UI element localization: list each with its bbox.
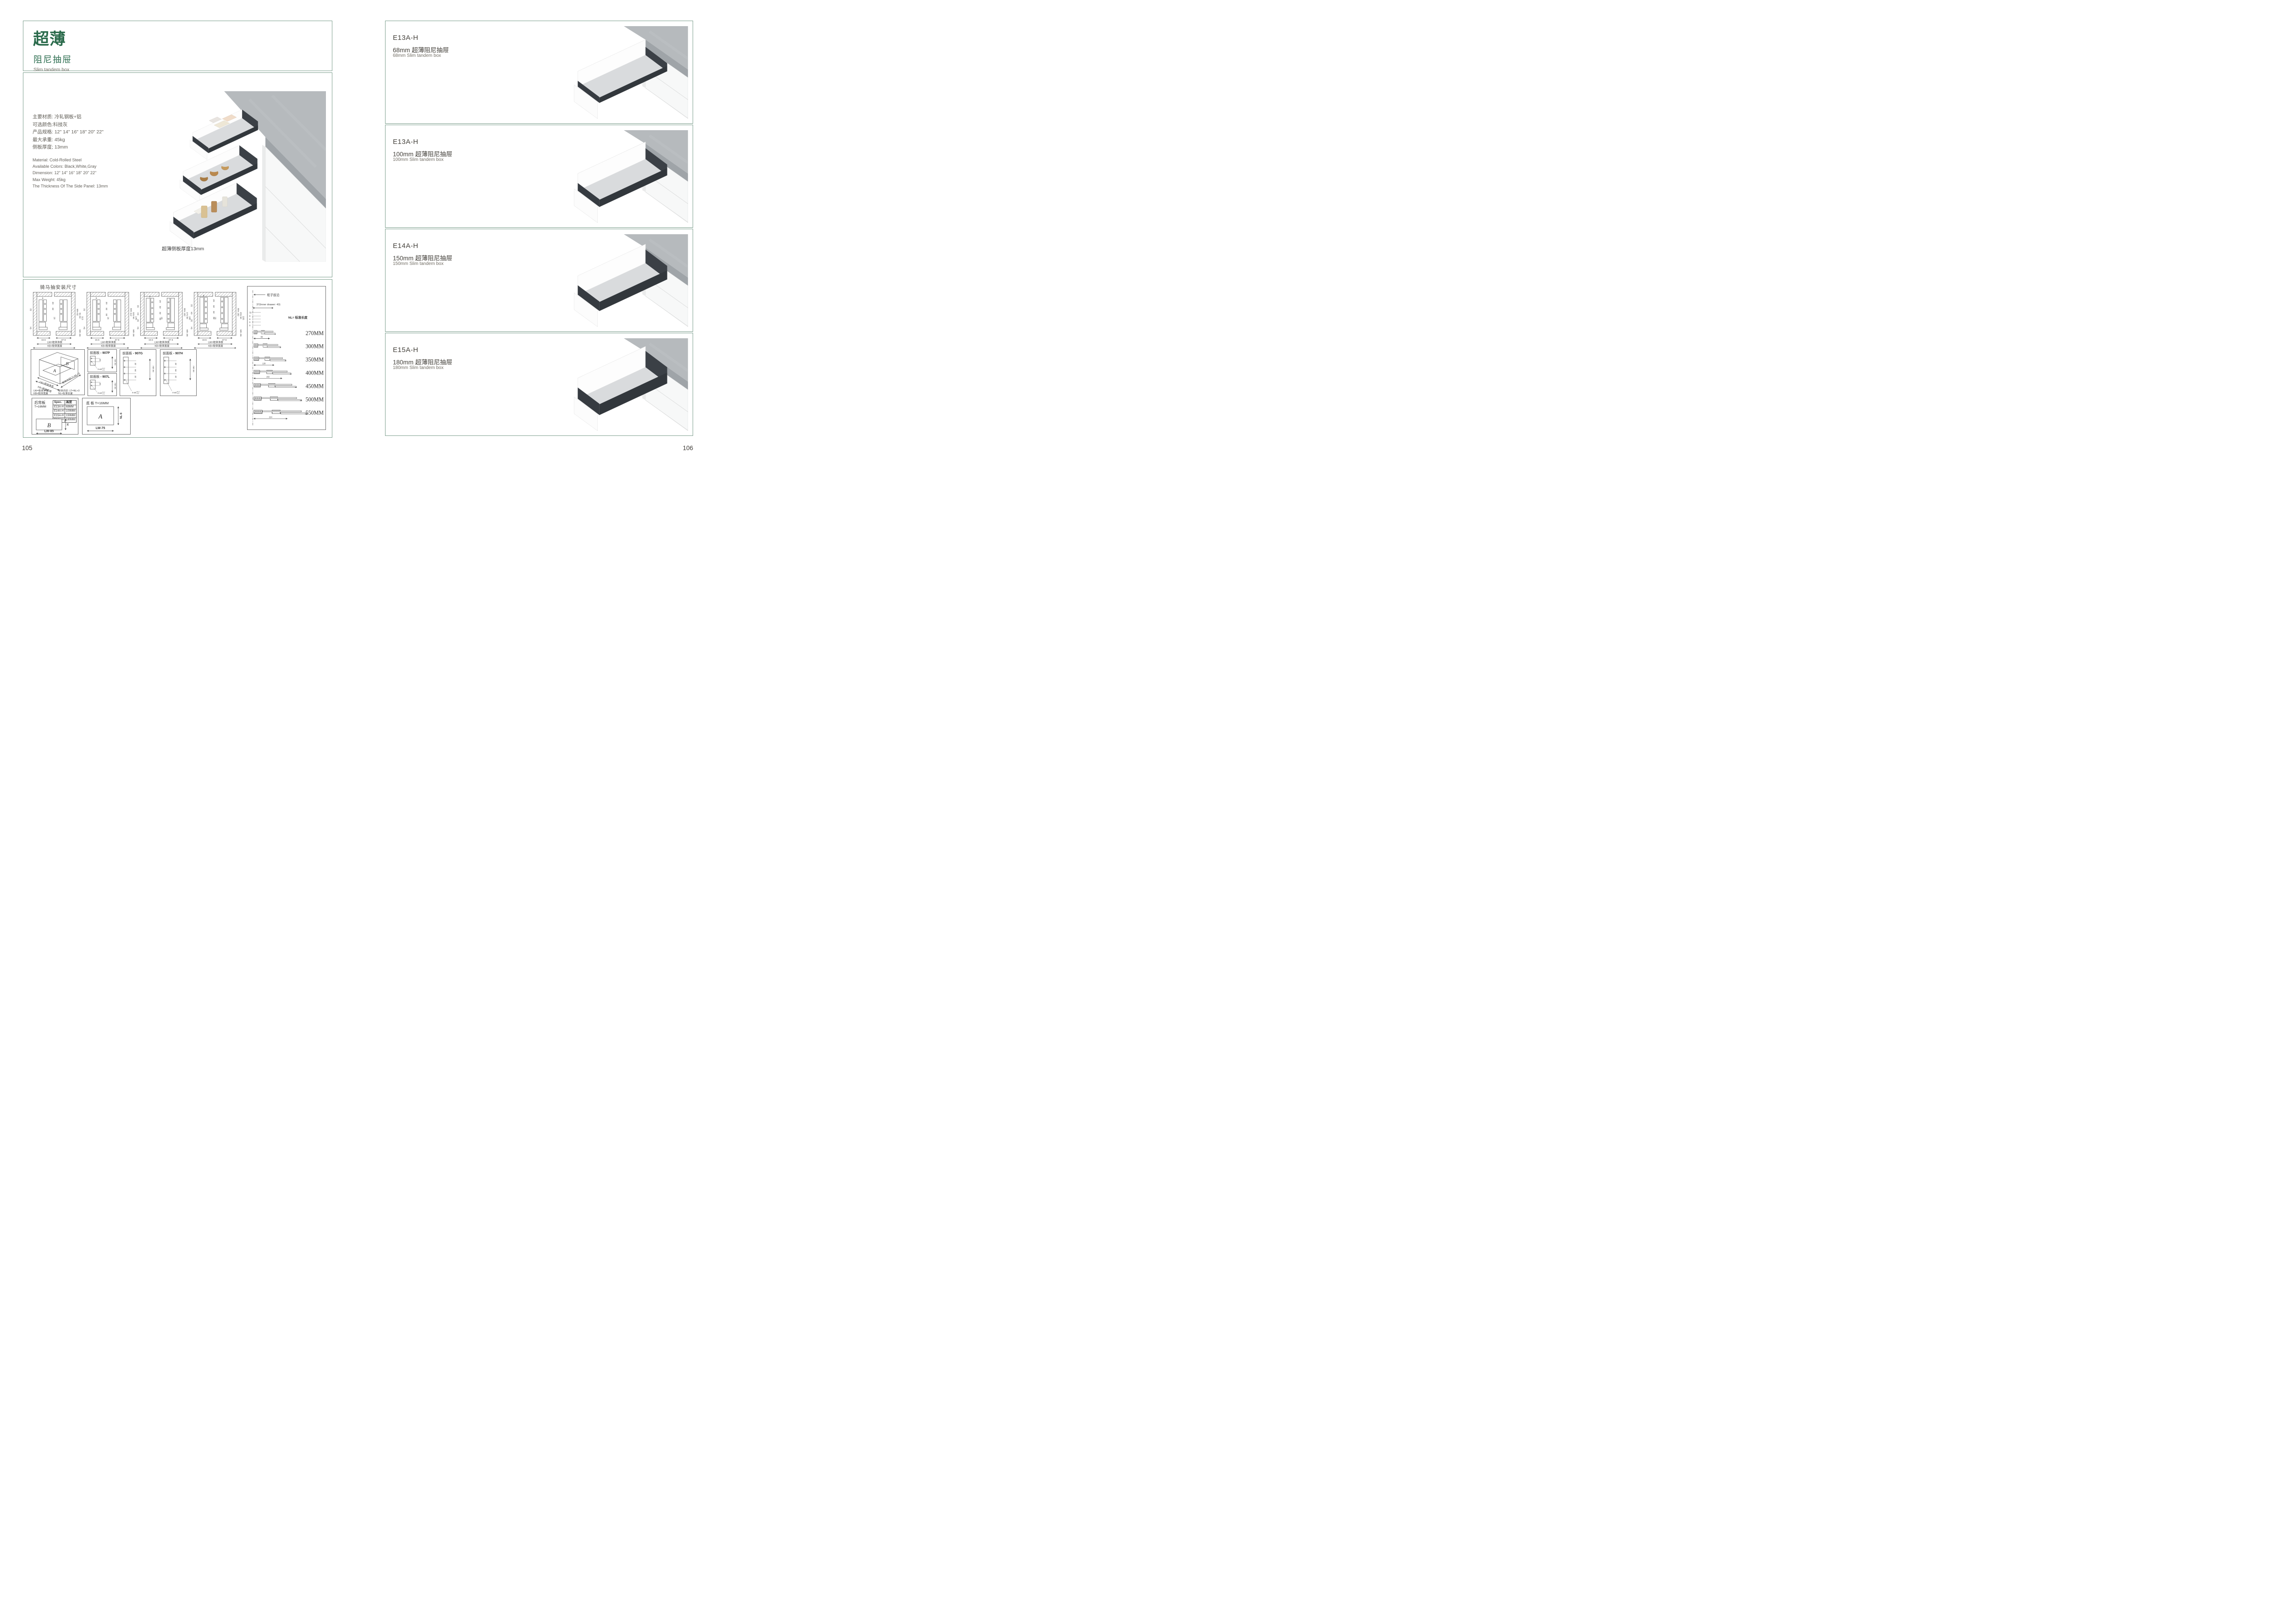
- dim-lw75: LW-75: [96, 427, 105, 430]
- front-panel-907p-title: 前面板 - 907P: [90, 351, 110, 355]
- col-height: 高度: [65, 401, 76, 405]
- dim-mid: 171.50: [186, 312, 188, 319]
- iso-legend-1: LW=柜体净宽: [33, 389, 49, 392]
- bottom-panel-drawing: A NL-6 LW-75: [85, 406, 128, 433]
- slide-270: [254, 330, 276, 335]
- product-photo-100mm: [552, 130, 688, 223]
- dim-96: 96: [260, 336, 263, 338]
- slide-450: [254, 384, 297, 388]
- dim-32b: 32: [105, 314, 108, 316]
- dim-max: 225: [242, 316, 244, 320]
- cross-section-diagram-3: 9 20 32 32 32 32 64 32 54 16 Min 162 171…: [137, 291, 191, 349]
- left-header-box: 超薄 阻尼抽屉 Slim tandem box: [23, 21, 332, 71]
- fp-min54: min 54: [114, 383, 116, 389]
- iso-legend-2: KB=柜体宽度: [33, 391, 48, 395]
- dim-left-64: 64: [137, 313, 140, 315]
- dim-16-5: 16.5: [95, 339, 99, 341]
- jar-lid: [200, 175, 208, 177]
- dim-192: 192: [266, 376, 270, 378]
- dim-mid: 91.50: [78, 313, 81, 319]
- product-section-100mm: E13A-H 100mm 超薄阻尼抽屉 100mm Slim tandem bo…: [385, 125, 693, 228]
- front-panel-name: 前面板: [163, 352, 172, 355]
- page-subtitle-en: Slim tandem box: [33, 67, 69, 72]
- front-panel-907h-title: 前面板 - 907H: [163, 351, 183, 356]
- dim-9: 9: [96, 297, 97, 300]
- dim-left-32b: 32: [191, 319, 193, 322]
- slide-550: [254, 410, 307, 414]
- jar-lid: [210, 169, 218, 172]
- label-kb: KB=柜体宽度: [208, 344, 223, 347]
- dim-32: 32: [212, 305, 215, 308]
- fp-min54: min 54: [152, 366, 154, 372]
- bottle-item: [201, 206, 207, 218]
- model-title-en: 150mm Slim tandem box: [393, 261, 444, 266]
- model-code: E14A-H: [393, 242, 419, 250]
- cell-model: E14A-H: [53, 409, 65, 414]
- dim-32: 32: [105, 308, 108, 310]
- length-chart-drawing: 柜子前沿 37(Inner drawer: 43) 32 9 9 9 9 NL=…: [248, 286, 325, 429]
- product-section-180mm: E15A-H 180mm 超薄阻尼抽屉 180mm Slim tandem bo…: [385, 333, 693, 436]
- front-panel-907p-drawing: 32 min 54 2-ø2+0.2-0.1: [88, 356, 116, 371]
- length-350: 350MM: [306, 357, 324, 363]
- dim-9: 9: [149, 296, 151, 298]
- cross-section-diagram-1: 9 20 32 32 54 16 Min 82 91.50 113 Min 36…: [30, 291, 84, 349]
- dim-224: 224: [269, 416, 273, 418]
- label-lw: LW=柜体净宽: [208, 340, 223, 344]
- model-code: E15A-H: [393, 346, 419, 354]
- fp-min54: min 54: [193, 366, 195, 372]
- cell-model: E15A-H: [53, 413, 65, 418]
- fp-dim-32: 32: [99, 383, 101, 385]
- product-photo-68mm: [552, 26, 688, 119]
- dim-9: 9: [42, 297, 44, 300]
- model-title-en: 180mm Slim tandem box: [393, 365, 444, 370]
- dim-min: Min 192: [237, 308, 240, 316]
- dim-20: 20: [51, 302, 54, 304]
- back-panel-thickness: T=16MM: [34, 405, 46, 408]
- model-title-cn: 68mm 超薄阻尼抽屉: [393, 45, 449, 54]
- table-row: E13A-H68MM: [53, 405, 76, 409]
- front-panel-907l-box: 前面板 - 907L 32 min 54 2-ø2+0.2-0.1: [88, 373, 117, 396]
- cell-height: 68MM: [65, 405, 76, 409]
- front-panel-907g-box: 前面板 - 907G 32 64 32 min 54 4-ø2+0.2-0.1: [120, 349, 156, 396]
- spec-en-line: Max Weight: 45kg: [33, 176, 108, 183]
- spec-cn-line: 主要材质: 冷轧钢板+铝: [33, 113, 104, 121]
- table-row: E14A-H100MM: [53, 409, 76, 414]
- dim-16-5: 16.5: [41, 339, 46, 341]
- spec-cn-line: 最大承重: 45kg: [33, 136, 104, 144]
- specs-cn: 主要材质: 冷轧钢板+铝 可选颜色:科技灰 产品规格: 12" 14" 16" …: [33, 113, 104, 151]
- fp-dim-32b: 32: [134, 375, 137, 378]
- dim-min36: Min 36: [78, 330, 81, 336]
- front-panel-907g-drawing: 32 64 32 min 54 4-ø2+0.2-0.1: [121, 356, 155, 396]
- product-photo-three-drawers: [155, 91, 326, 262]
- length-chart-box: 柜子前沿 37(Inner drawer: 43) 32 9 9 9 9 NL=…: [247, 286, 326, 430]
- fp-min54: min 54: [114, 359, 116, 365]
- dim-9: 9: [249, 315, 251, 317]
- label-lw: LW=柜体净宽: [154, 340, 170, 344]
- length-270: 270MM: [306, 330, 324, 336]
- panel-a-letter: A: [53, 369, 56, 374]
- iso-cabinet-drawing: A B LW=柜体净宽 KB=柜体宽度 柜体内空LT=NL+3 LW=柜体净宽 …: [31, 350, 84, 395]
- length-400: 400MM: [306, 370, 324, 376]
- dim-20: 20: [212, 299, 215, 302]
- label-kb: KB=柜体宽度: [154, 344, 170, 347]
- dim-min36: Min 36: [132, 330, 135, 336]
- fp-note: 4-ø2+0.2-0.1: [132, 391, 139, 395]
- col-spec: Spec.: [53, 401, 65, 405]
- dim-9: 9: [249, 318, 251, 320]
- dim-left-54: 54: [137, 327, 140, 330]
- left-install-box: 骑马抽安装尺寸 9 20 32 32: [23, 279, 332, 438]
- dim-20: 20: [105, 302, 108, 304]
- panel-b-letter: B: [47, 422, 51, 429]
- dim-16: 16: [107, 317, 110, 319]
- length-300: 300MM: [306, 343, 324, 350]
- cabinet-front-label: 柜子前沿: [267, 293, 280, 297]
- iso-diagram-box: A B LW=柜体净宽 KB=柜体宽度 柜体内空LT=NL+3 LW=柜体净宽 …: [31, 349, 85, 395]
- fp-dim-64: 64: [175, 369, 177, 372]
- table-row: E15A-H150MM: [53, 413, 76, 418]
- panel-b-letter: B: [66, 361, 69, 366]
- iso-lt-label: 柜体内空LT=NL+3: [61, 372, 81, 385]
- bottom-panel-box: 底 板 T=16MM A NL-6 LW-75: [82, 398, 131, 435]
- catalog-spread: 超薄 阻尼抽屉 Slim tandem box 主要材质: 冷轧钢板+铝 可选颜…: [0, 0, 719, 468]
- spec-cn-line: 侧板厚度; 13mm: [33, 143, 104, 151]
- length-450: 450MM: [306, 383, 324, 390]
- dim-left-54: 54: [30, 327, 33, 330]
- cell-model: E13A-H: [53, 405, 65, 409]
- iso-legend-4: NL=标准长度: [58, 391, 73, 395]
- fp-note: 2-ø2+0.2-0.1: [98, 368, 105, 371]
- front-panel-907g-title: 前面板 - 907G: [122, 351, 143, 356]
- dim-16-5: 16.5: [149, 339, 153, 341]
- dim-lw85: LW-85: [44, 430, 54, 433]
- fp-dim-32: 32: [99, 359, 101, 362]
- length-500: 500MM: [306, 396, 324, 403]
- spec-en-line: Available Colors: Black,White,Gray: [33, 163, 108, 170]
- label-lw: LW=柜体净宽: [47, 340, 62, 344]
- front-panel-code: - 907H: [173, 352, 183, 355]
- dim-left-32: 32: [83, 308, 86, 311]
- slide-assemblies: [200, 297, 228, 330]
- dim-h: H: [67, 424, 70, 425]
- dim-left-54: 54: [83, 327, 86, 330]
- model-title-en: 100mm Slim tandem box: [393, 157, 444, 162]
- model-code: E13A-H: [393, 138, 419, 146]
- dim-left-32: 32: [30, 308, 33, 311]
- jar-lid: [221, 164, 229, 167]
- model-code: E13A-H: [393, 34, 419, 42]
- cross-section-diagram-4: 9 20 32 32 32 32 64 32 54 16 Min 192 201…: [191, 291, 245, 349]
- slide-500: [254, 397, 302, 401]
- back-panel-box: 后背板 T=16MM Spec.高度 E13A-H68MM E14A-H100M…: [32, 398, 78, 435]
- back-panel-drawing: B H LW-85: [33, 418, 77, 435]
- cell-height: 100MM: [65, 409, 76, 414]
- product-section-150mm: E14A-H 150mm 超薄阻尼抽屉 150mm Slim tandem bo…: [385, 229, 693, 332]
- page-number-right: 106: [673, 445, 693, 451]
- front-panel-907l-drawing: 32 min 54 2-ø2+0.2-0.1: [88, 380, 116, 395]
- dim-min: Min 162: [183, 308, 186, 316]
- open-drawer: [574, 347, 667, 431]
- nl-note: NL= 标准长度: [288, 315, 308, 319]
- slide-400: [254, 370, 292, 374]
- left-main-box: 主要材质: 冷轧钢板+铝 可选颜色:科技灰 产品规格: 12" 14" 16" …: [23, 72, 332, 277]
- spec-cn-line: 可选颜色:科技灰: [33, 121, 104, 129]
- front-panel-name: 前面板: [90, 352, 99, 355]
- install-title: 骑马抽安装尺寸: [40, 284, 77, 291]
- product-photo-180mm: [552, 338, 688, 431]
- dim-min36: Min 36: [186, 330, 188, 336]
- dim-min: Min 82: [76, 309, 79, 316]
- dim-9: 9: [249, 321, 251, 324]
- dim-20: 20: [159, 300, 161, 303]
- page-title: 超薄: [33, 31, 66, 47]
- slide-300: [254, 344, 281, 348]
- dim-32: 32: [159, 306, 161, 309]
- dim-32b: 32: [212, 311, 215, 314]
- drawer-bottom-open: [170, 183, 257, 247]
- dim-32: 32: [249, 311, 252, 314]
- offset-label: 37(Inner drawer: 43): [256, 303, 280, 306]
- specs-en: Material: Cold-Rolled Steel Available Co…: [33, 157, 108, 189]
- dim-16-5: 16.5: [202, 339, 207, 341]
- front-panel-name: 前面板: [122, 352, 132, 355]
- dim-mid: 121.50: [132, 312, 135, 319]
- fp-dim-32: 32: [134, 363, 137, 365]
- dim-left-64: 64: [191, 312, 193, 314]
- spec-cn-line: 产品规格: 12" 14" 16" 18" 20" 22": [33, 128, 104, 136]
- iso-legend-3: 柜体内空: LT=NL+3: [58, 389, 80, 392]
- dim-32b: 32: [159, 312, 161, 314]
- dim-min36: Min 36: [239, 330, 242, 336]
- model-title-cn: 180mm 超薄阻尼抽屉: [393, 357, 452, 366]
- fp-note: 4-ø2+0.2-0.1: [172, 391, 180, 395]
- model-title-en: 68mm Slim tandem box: [393, 53, 441, 58]
- front-panel-code: - 907P: [100, 352, 110, 355]
- dim-min: Min 112: [130, 308, 132, 317]
- front-panel-907h-drawing: 32 64 32 min 54 4-ø2+0.2-0.1: [161, 356, 196, 396]
- dim-left-32: 32: [137, 305, 140, 308]
- bottom-panel-title: 底 板 T=16MM: [86, 401, 109, 406]
- open-drawer: [574, 244, 667, 327]
- product-photo-150mm: [552, 234, 688, 327]
- front-panel-code: - 907G: [133, 352, 143, 355]
- front-panel-name: 前面板: [90, 375, 99, 379]
- front-panel-907h-box: 前面板 - 907H 32 64 32 min 54 4-ø2+0.2-0.1: [160, 349, 197, 396]
- front-panel-907p-box: 前面板 - 907P 32 min 54 2-ø2+0.2-0.1: [88, 349, 117, 372]
- product-section-68mm: E13A-H 68mm 超薄阻尼抽屉 68mm Slim tandem box: [385, 21, 693, 124]
- dim-left-54: 54: [191, 327, 193, 330]
- dim-mid: 201.50: [239, 312, 242, 319]
- back-panel-title: 后背板: [34, 400, 45, 405]
- model-title-cn: 150mm 超薄阻尼抽屉: [393, 253, 452, 262]
- label-kb: KB=柜体宽度: [101, 344, 116, 347]
- slide-350: [254, 357, 286, 361]
- model-title-cn: 100mm 超薄阻尼抽屉: [393, 149, 452, 158]
- label-lw: LW=柜体净宽: [101, 340, 116, 344]
- bottle-item: [211, 201, 217, 212]
- dim-128: 128: [262, 363, 266, 365]
- photo-caption: 超薄侧板厚度13mm: [162, 245, 204, 252]
- dim-16: 16: [53, 317, 56, 319]
- page-subtitle-cn: 阻尼抽屉: [33, 55, 72, 64]
- dim-left-32: 32: [191, 304, 193, 307]
- spec-en-line: Dimension: 12" 14" 16" 18" 20" 22": [33, 170, 108, 176]
- fp-note: 2-ø2+0.2-0.1: [98, 391, 105, 395]
- dim-nl6: NL-6: [120, 413, 123, 419]
- dim-9: 9: [249, 324, 251, 326]
- dim-16: 16: [214, 317, 217, 319]
- bottle-item: [222, 197, 227, 207]
- front-panel-907l-title: 前面板 - 907L: [90, 374, 110, 379]
- fp-dim-32b: 32: [175, 375, 177, 378]
- label-kb: KB=柜体宽度: [47, 344, 62, 347]
- fp-dim-64: 64: [134, 369, 137, 372]
- spec-en-line: The Thickness Of The Side Panel: 13mm: [33, 183, 108, 189]
- spec-en-line: Material: Cold-Rolled Steel: [33, 157, 108, 163]
- cross-section-diagram-2: 9 20 32 32 32 54 16 Min 112 121.50 145 M…: [83, 291, 138, 349]
- dim-32: 32: [51, 308, 54, 310]
- front-panel-code: - 907L: [100, 375, 110, 379]
- dim-16: 16: [160, 317, 163, 319]
- cell-height: 150MM: [65, 413, 76, 418]
- fp-dim-32: 32: [175, 363, 177, 365]
- dim-left-32b: 32: [137, 319, 140, 322]
- length-550: 550MM: [306, 410, 324, 416]
- panel-a-letter: A: [98, 413, 103, 420]
- dim-9: 9: [203, 295, 204, 297]
- page-number-left: 105: [22, 445, 33, 451]
